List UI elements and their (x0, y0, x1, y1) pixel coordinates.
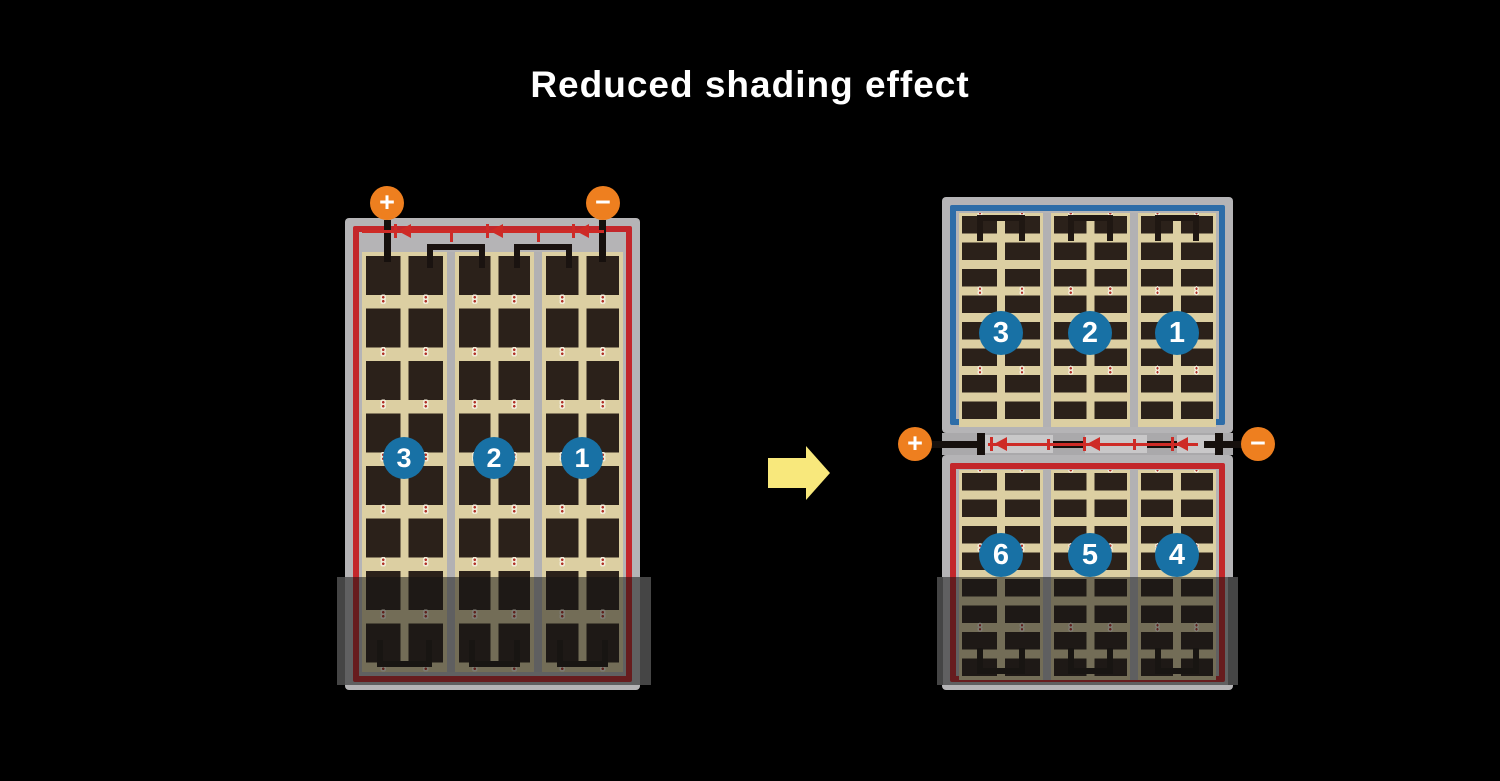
string-number-badge: 2 (473, 437, 515, 479)
string-bridge-busbar (514, 244, 572, 268)
shading-overlay-left (337, 577, 651, 685)
shade-edge (937, 577, 943, 685)
shade-edge (1228, 577, 1238, 685)
minus-sign: − (595, 187, 611, 217)
figure-canvas: Reduced shading effect + − (0, 0, 1500, 781)
minus-terminal: − (1241, 427, 1275, 461)
shading-overlay-right (937, 577, 1238, 685)
bypass-diode-wire (988, 443, 1198, 446)
wire-tap-tick (1047, 439, 1050, 450)
top-busbar (977, 215, 1024, 241)
string-number-badge: 3 (383, 437, 425, 479)
plus-lead-wire (384, 220, 391, 262)
string-number-badge: 6 (979, 533, 1023, 577)
string-number-badge: 1 (561, 437, 603, 479)
minus-lead-wire (1204, 441, 1244, 448)
string-number: 1 (1169, 317, 1185, 350)
string-number-badge: 3 (979, 311, 1023, 355)
diode-icon (576, 224, 589, 238)
string-number: 6 (993, 539, 1009, 572)
string-number: 2 (486, 443, 501, 474)
shade-edge (640, 577, 651, 685)
junction-strip (942, 433, 1233, 455)
figure-title: Reduced shading effect (0, 64, 1500, 106)
string-number: 3 (396, 443, 411, 474)
diode-icon (1087, 437, 1100, 451)
plus-terminal: + (898, 427, 932, 461)
minus-lead-wire (599, 220, 606, 262)
string-number-badge: 5 (1068, 533, 1112, 577)
string-number: 4 (1169, 539, 1185, 572)
string-number-badge: 1 (1155, 311, 1199, 355)
shade-edge (337, 577, 345, 685)
plus-sign: + (379, 187, 395, 217)
diode-icon (1175, 437, 1188, 451)
string-number: 3 (993, 317, 1009, 350)
top-busbar (1068, 215, 1112, 241)
plus-lead-wire (930, 441, 980, 448)
plus-terminal: + (370, 186, 404, 220)
string-number-badge: 2 (1068, 311, 1112, 355)
wire-tap-tick (537, 232, 540, 242)
transform-arrow (768, 458, 806, 488)
minus-terminal: − (586, 186, 620, 220)
top-busbar (1155, 215, 1199, 241)
string-number: 2 (1082, 317, 1098, 350)
minus-sign: − (1250, 428, 1266, 458)
wire-tap-tick (450, 232, 453, 242)
diode-icon (994, 437, 1007, 451)
string-separator (1043, 213, 1051, 427)
transform-arrow-head (806, 446, 830, 500)
wire-tap-tick (1133, 439, 1136, 450)
string-number: 1 (574, 443, 589, 474)
string-bridge-busbar (427, 244, 485, 268)
bypass-diode-wire (362, 230, 604, 233)
plus-sign: + (907, 428, 923, 458)
string-number: 5 (1082, 539, 1098, 572)
diode-icon (490, 224, 503, 238)
diode-icon (398, 224, 411, 238)
string-separator (1130, 213, 1138, 427)
string-number-badge: 4 (1155, 533, 1199, 577)
